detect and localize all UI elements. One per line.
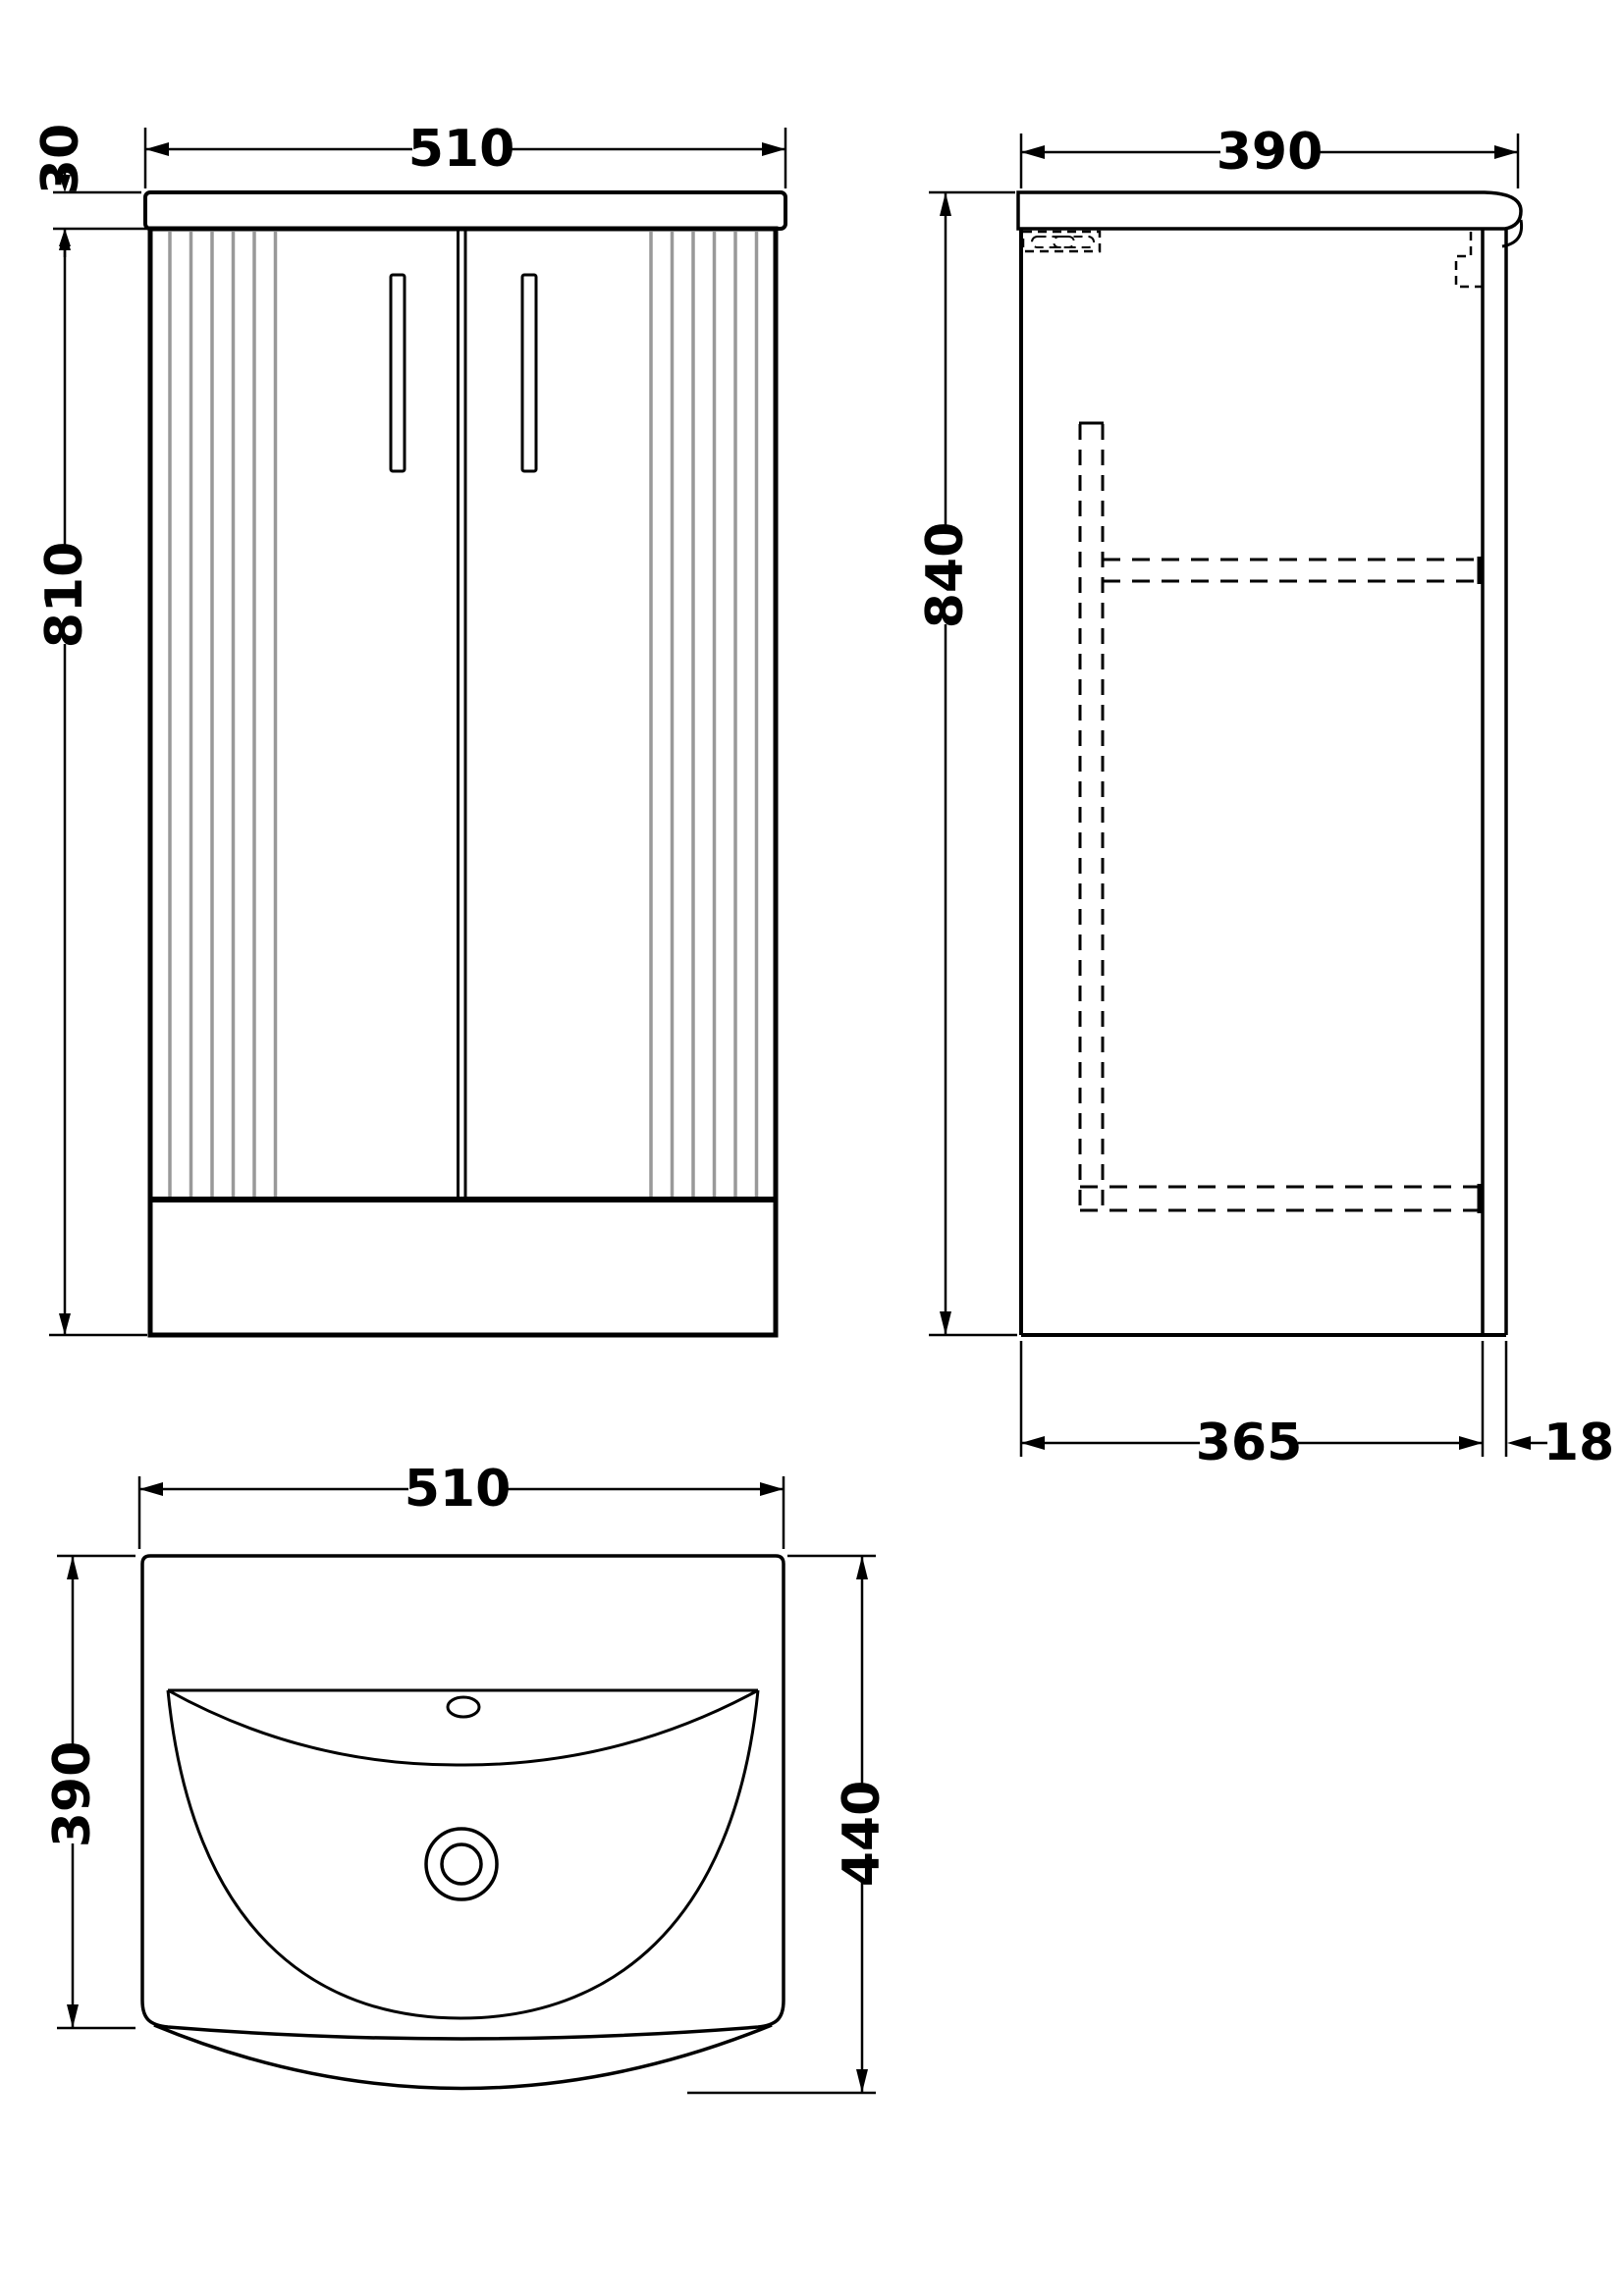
side-counter-top <box>1018 192 1521 229</box>
plan-outer-outline <box>142 1556 784 2039</box>
plan-bowl-outline <box>168 1690 758 2018</box>
front-flutes-right <box>651 232 757 1197</box>
plan-front-bulge <box>154 2025 772 2089</box>
plan-basin-label: 390 <box>43 1741 102 1848</box>
side-dim-door <box>1506 1341 1547 1457</box>
front-flutes-left <box>170 232 276 1197</box>
plan-view: 510 390 440 <box>43 1460 892 2093</box>
drawing-canvas: 510 30 810 <box>0 0 1623 2296</box>
side-bottom-shelf <box>1080 1184 1480 1213</box>
side-back-channel <box>1079 423 1104 1209</box>
front-width-label: 510 <box>408 120 515 179</box>
plan-tap-hole <box>448 1697 479 1717</box>
side-wall-bracket <box>1023 232 1100 251</box>
front-counter-label: 30 <box>31 124 90 194</box>
side-dim-height <box>929 192 1017 1335</box>
side-depth-label: 390 <box>1217 123 1324 182</box>
side-door-label: 18 <box>1543 1414 1614 1472</box>
side-view: 390 840 365 18 <box>916 123 1614 1472</box>
plan-drain-outer <box>426 1829 497 1899</box>
side-height-label: 840 <box>916 522 975 629</box>
plan-drain-inner <box>442 1844 481 1884</box>
front-handle-left <box>391 275 405 471</box>
technical-drawing: 510 30 810 <box>0 0 1623 2296</box>
front-cabinet-outline <box>150 229 776 1335</box>
side-body-label: 365 <box>1196 1414 1303 1472</box>
side-hinge-step <box>1456 232 1483 287</box>
plan-depth-label: 440 <box>833 1781 892 1888</box>
front-height-label: 810 <box>35 542 94 649</box>
side-middle-shelf <box>1103 557 1480 584</box>
front-counter-top <box>145 192 785 229</box>
front-view: 510 30 810 <box>31 120 785 1335</box>
front-door-divider <box>459 229 466 1200</box>
front-handle-right <box>522 275 536 471</box>
plan-width-label: 510 <box>405 1460 512 1519</box>
front-dim-height <box>49 229 147 1335</box>
plan-bowl-ledge <box>168 1690 758 1765</box>
